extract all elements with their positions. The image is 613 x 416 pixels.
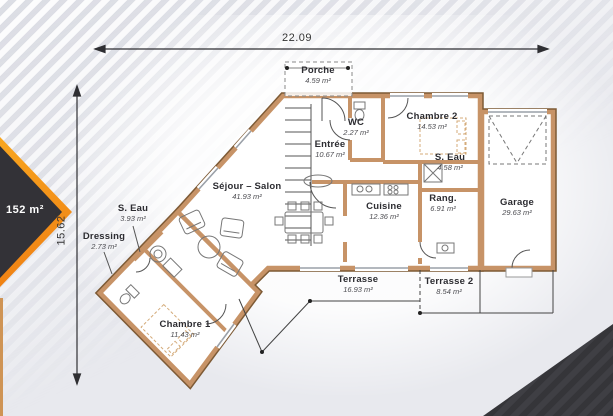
room-label-s-eau-2: S. Eau 4.58 m² [435,153,465,173]
room-label-sejour: Séjour – Salon 41.93 m² [213,182,282,202]
terrace-corner-dots [260,299,422,354]
room-label-porche: Porche 4.59 m² [301,66,334,86]
dimension-height-label: 15.625 [55,211,68,245]
dimension-width-label: 22.09 [282,32,312,44]
terrace-outline [239,270,553,352]
room-label-terrasse: Terrasse 16.93 m² [338,275,379,295]
garage-door-step [506,268,532,277]
room-label-garage: Garage 29.63 m² [500,198,534,218]
height-dimension-arrow [74,86,81,384]
room-label-terrasse2: Terrasse 2 8.54 m² [425,277,474,297]
width-dimension-arrow [95,46,548,53]
room-label-cuisine: Cuisine 12.36 m² [366,202,402,222]
room-label-wc: WC 2.27 m² [343,118,368,138]
room-label-chambre1: Chambre 1 11.43 m² [160,320,211,340]
room-label-s-eau-1: S. Eau 3.93 m² [118,204,148,224]
room-label-rangement: Rang. 6.91 m² [429,194,456,214]
room-label-chambre2: Chambre 2 14.53 m² [407,112,458,132]
room-label-entree: Entrée 10.67 m² [315,140,346,160]
room-label-dressing: Dressing 2.73 m² [83,232,125,252]
